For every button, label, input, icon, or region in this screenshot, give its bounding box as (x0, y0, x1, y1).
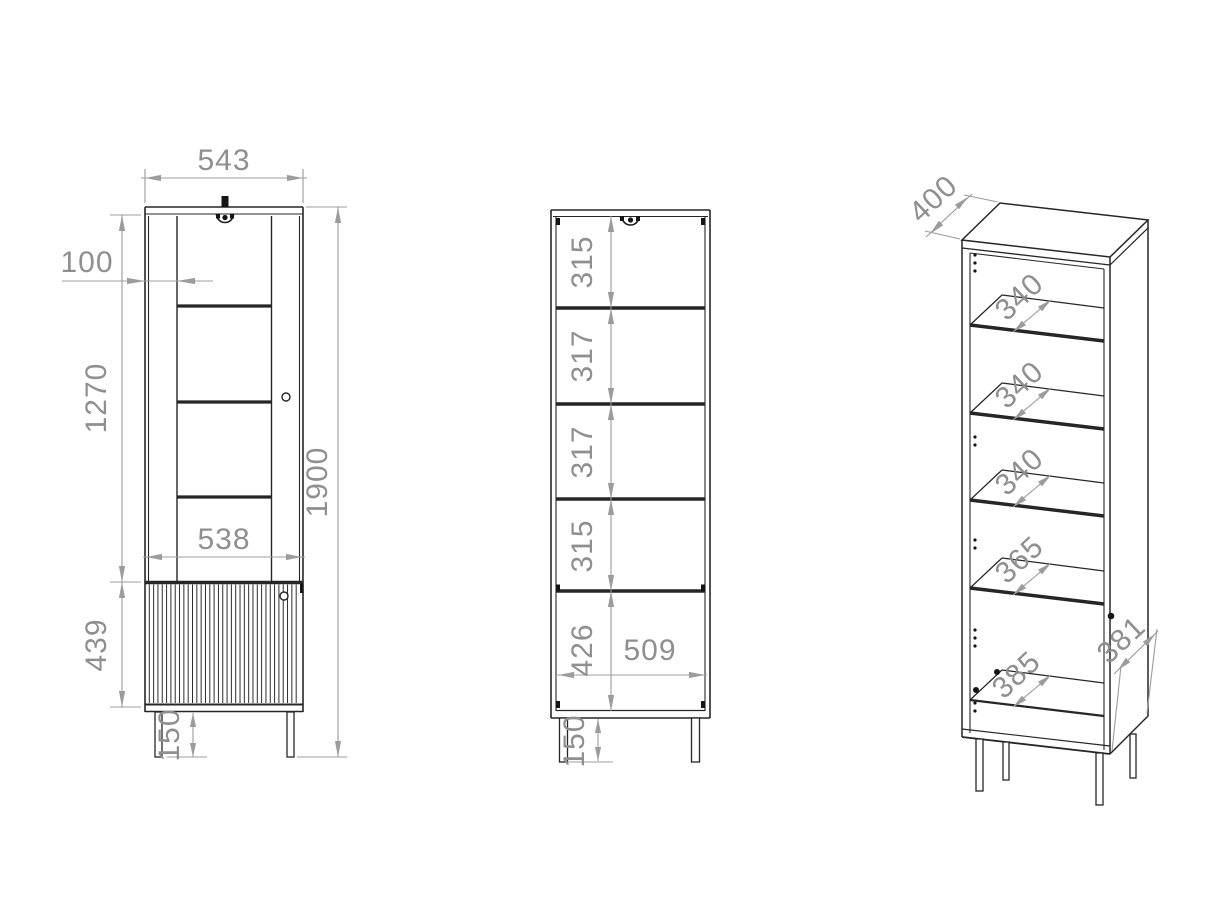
dim-glass-door-height: 1270 (80, 363, 113, 434)
dim-side-depth: 381 (1091, 610, 1152, 670)
dim-shelf-gap-1: 315 (566, 235, 599, 288)
dim-leg-height-open: 150 (558, 714, 591, 767)
dim-shelf-gap-4: 315 (566, 519, 599, 572)
dim-bottom-depth: 385 (986, 645, 1047, 705)
dim-top-width: 543 (197, 144, 250, 177)
dim-shelf-3-depth: 340 (989, 442, 1050, 502)
dim-door-width: 538 (197, 523, 250, 556)
furniture-dimension-drawing: 543 100 1270 439 538 150 1900 315 317 31… (0, 0, 1219, 914)
dim-top-depth: 400 (903, 169, 964, 229)
dim-total-height: 1900 (301, 447, 334, 518)
fluted-door-slats (149, 585, 296, 704)
dim-shelf-gap-3: 317 (566, 425, 599, 478)
dim-leg-height-front: 150 (153, 708, 186, 761)
dim-stile-width: 100 (60, 246, 113, 279)
dim-shelf-gap-2: 317 (566, 329, 599, 382)
technical-drawing-page: 543 100 1270 439 538 150 1900 315 317 31… (0, 0, 1219, 914)
dim-lower-door-height: 439 (80, 618, 113, 671)
dim-interior-width: 509 (623, 634, 676, 667)
cabinet-outline-lines (145, 203, 1148, 805)
dim-shelf-1-depth: 340 (989, 267, 1050, 327)
dim-bottom-compartment: 426 (566, 623, 599, 676)
dim-shelf-2-depth: 340 (989, 355, 1050, 415)
dim-shelf-4-depth: 365 (989, 530, 1050, 590)
